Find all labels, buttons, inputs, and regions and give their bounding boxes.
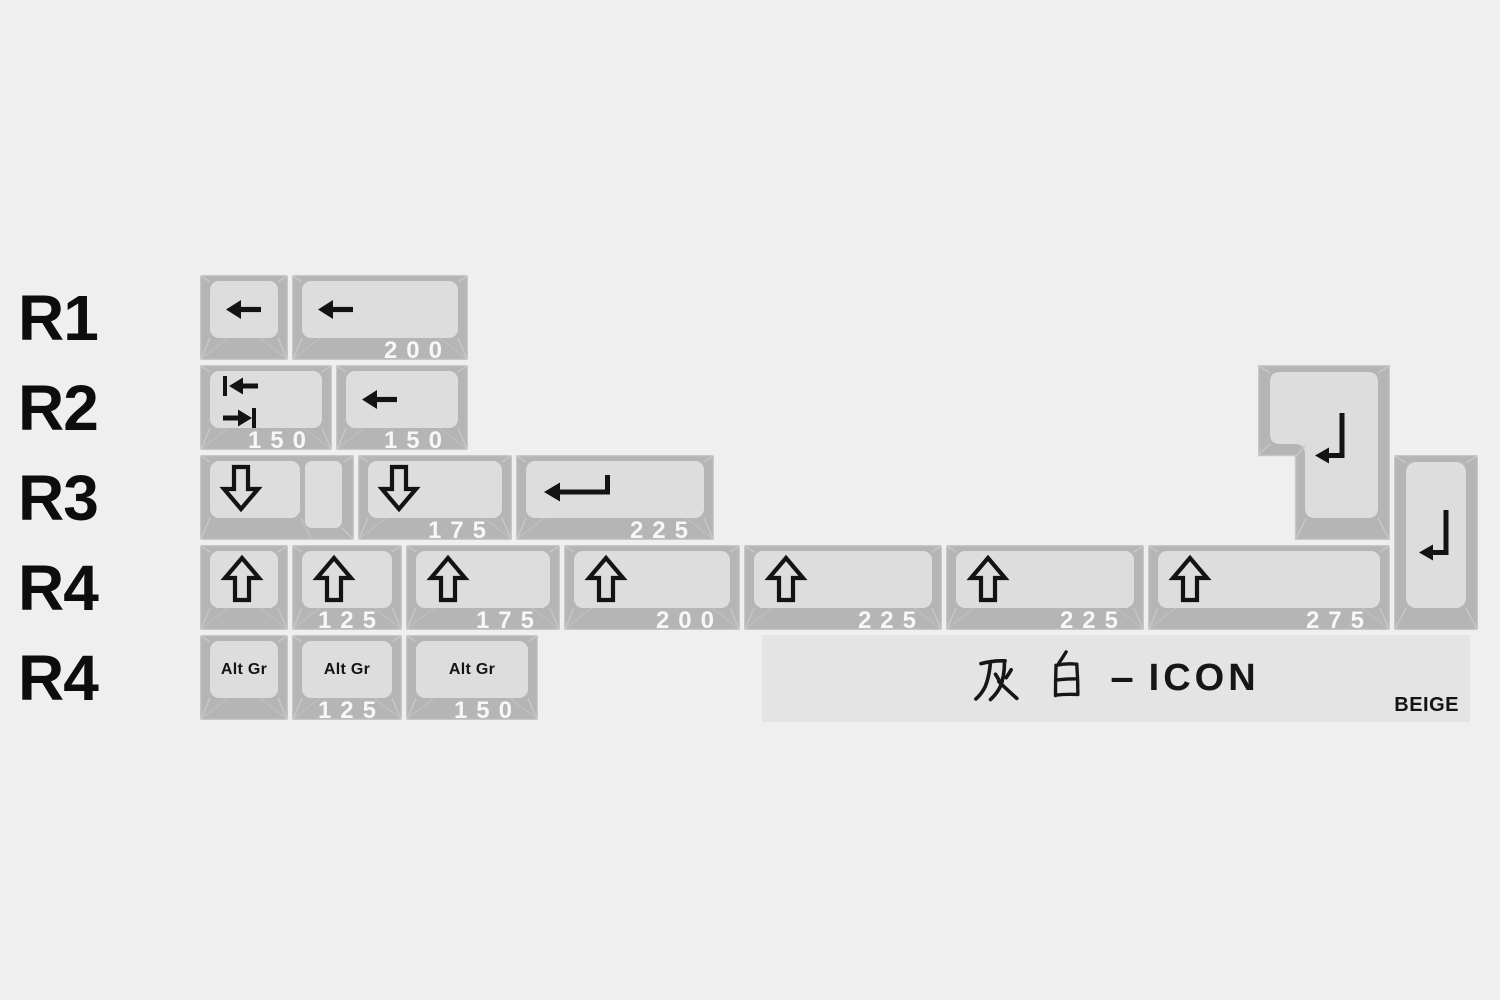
keycap-arrow-left-1u — [200, 275, 288, 360]
keycap-size-label: 200 — [656, 609, 723, 633]
keycap-size-label: 225 — [858, 609, 925, 633]
keycap-up-arrow-200: 200 — [564, 545, 740, 630]
keycap-size-label: 225 — [1060, 609, 1127, 633]
altgr-legend: Alt Gr — [416, 641, 528, 698]
keycap-size-label: 175 — [476, 609, 543, 633]
keycap-size-label: 200 — [384, 339, 451, 363]
keycap-down-arrow-175: 175 — [358, 455, 512, 540]
keycap-kitting-diagram: R1200R2 150150R3175225R41251752002252252… — [0, 0, 1500, 1000]
keycap-stepped-down-arrow-1u — [200, 455, 354, 540]
keycap-alt-gr-125: Alt Gr125 — [292, 635, 402, 720]
keycap-enter-arrow-wide-225: 225 — [516, 455, 714, 540]
banner-separator: – — [1102, 664, 1139, 704]
cjk-char-bai-icon — [1037, 648, 1093, 704]
keycap-size-label: 125 — [318, 609, 385, 633]
keycap-up-arrow-175: 175 — [406, 545, 560, 630]
keycap-arrow-left-200: 200 — [292, 275, 468, 360]
keycap-size-label: 175 — [428, 519, 495, 543]
keycap-alt-gr-1u: Alt Gr — [200, 635, 288, 720]
colorway-beige-label: BEIGE — [1394, 694, 1459, 717]
row-label-r3-2: R3 — [18, 455, 168, 540]
row-label-r1-0: R1 — [18, 275, 168, 360]
keycap-size-label: 125 — [318, 699, 385, 723]
colorway-banner: – ICON BEIGE — [762, 635, 1470, 722]
keycap-size-label: 275 — [1306, 609, 1373, 633]
cjk-char-hui-icon — [972, 648, 1028, 704]
keycap-size-label: 225 — [630, 519, 697, 543]
colorway-latin-name: ICON — [1149, 659, 1260, 704]
keycap-size-label: 150 — [248, 429, 315, 453]
keycap-up-arrow-225: 225 — [946, 545, 1144, 630]
keycap-alt-gr-150: Alt Gr150 — [406, 635, 538, 720]
keycap-up-arrow-125: 125 — [292, 545, 402, 630]
keycap-size-label: 150 — [454, 699, 521, 723]
keycap-up-arrow-1u — [200, 545, 288, 630]
altgr-legend: Alt Gr — [302, 641, 392, 698]
keycap-arrow-left-150: 150 — [336, 365, 468, 450]
altgr-legend: Alt Gr — [210, 641, 278, 698]
row-label-r4-4: R4 — [18, 635, 168, 720]
row-label-r4-3: R4 — [18, 545, 168, 630]
keycap-size-label: 150 — [384, 429, 451, 453]
keycap-tab-arrows-150: 150 — [200, 365, 332, 450]
keycap-up-arrow-275: 275 — [1148, 545, 1390, 630]
colorway-title: – ICON — [762, 647, 1470, 704]
keycap-iso-enter — [1258, 365, 1390, 540]
keycap-vertical-enter-2u — [1394, 455, 1478, 630]
row-label-r2-1: R2 — [18, 365, 168, 450]
keycap-up-arrow-225: 225 — [744, 545, 942, 630]
